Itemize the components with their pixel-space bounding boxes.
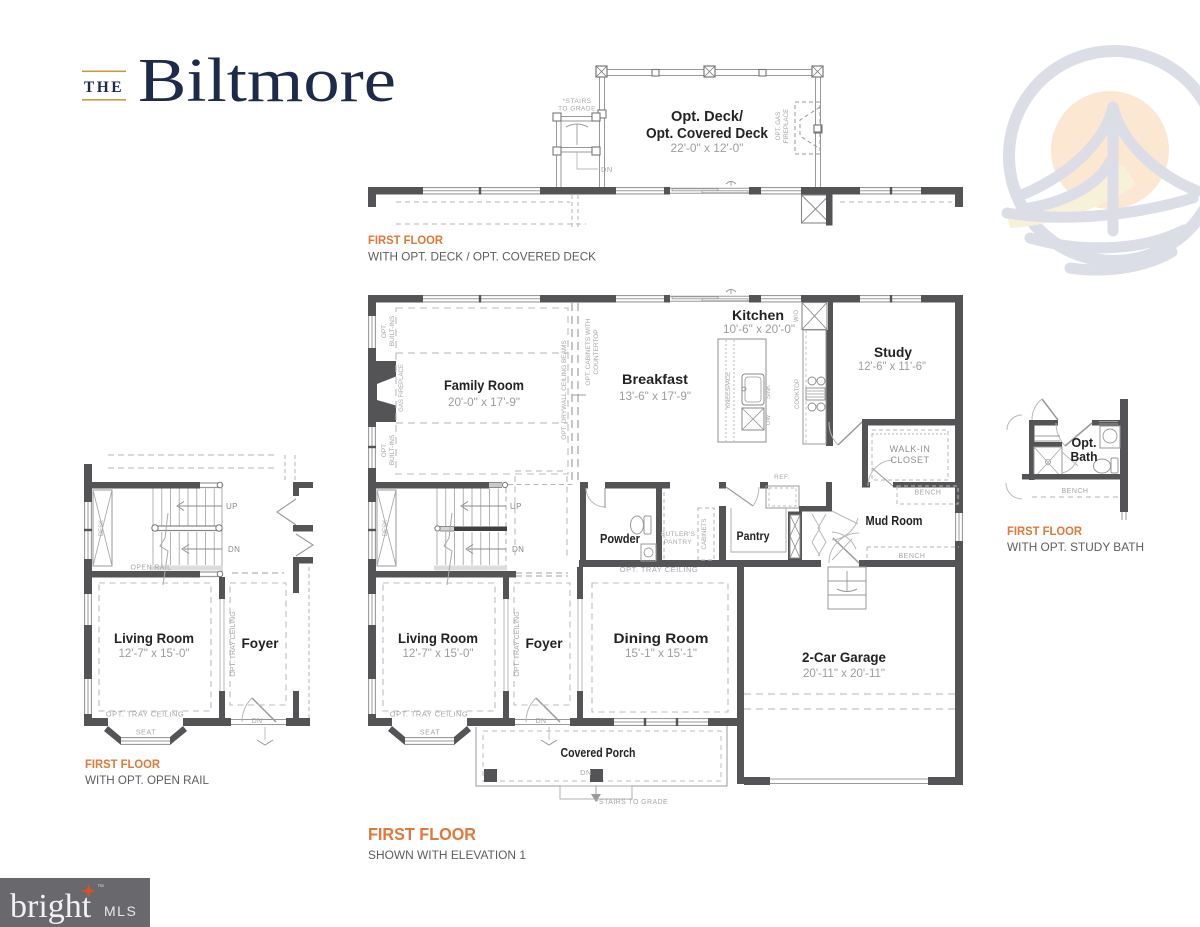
svg-text:OPT.: OPT.	[381, 324, 388, 339]
svg-text:DN: DN	[601, 165, 613, 174]
svg-text:TO GRADE: TO GRADE	[558, 106, 596, 113]
svg-text:DN: DN	[536, 718, 547, 725]
svg-text:12'-6" x 11'-6": 12'-6" x 11'-6"	[858, 359, 926, 373]
svg-text:10'-6" x 20'-0": 10'-6" x 20'-0"	[723, 322, 795, 336]
svg-text:BENCH: BENCH	[914, 490, 941, 497]
svg-text:Family Room: Family Room	[444, 377, 524, 393]
svg-text:20'-0" x 17'-9": 20'-0" x 17'-9"	[448, 395, 520, 409]
svg-text:DN: DN	[580, 768, 592, 777]
svg-text:OPEN RAIL: OPEN RAIL	[131, 565, 172, 572]
svg-text:FIRST FLOOR: FIRST FLOOR	[368, 824, 476, 844]
svg-text:DW: DW	[766, 415, 772, 425]
svg-text:Foyer: Foyer	[526, 635, 564, 651]
svg-text:DN: DN	[512, 545, 524, 554]
svg-text:20'-11" x 20'-11": 20'-11" x 20'-11"	[803, 666, 885, 680]
svg-text:FIRST FLOOR: FIRST FLOOR	[368, 233, 443, 247]
svg-text:W/O: W/O	[794, 310, 800, 322]
svg-text:BUILT-INS: BUILT-INS	[389, 315, 396, 346]
svg-text:BENCH: BENCH	[898, 553, 925, 560]
svg-text:DN: DN	[252, 718, 263, 725]
svg-text:Kitchen: Kitchen	[732, 307, 784, 323]
svg-text:15'-1" x 15'-1": 15'-1" x 15'-1"	[625, 646, 697, 660]
svg-text:UP: UP	[510, 502, 522, 511]
svg-text:COUNTERTOP: COUNTERTOP	[593, 329, 600, 374]
svg-text:22'-0" x 12'-0": 22'-0" x 12'-0"	[671, 141, 744, 155]
svg-text:12'-7" x 15'-0": 12'-7" x 15'-0"	[119, 646, 190, 660]
svg-text:Powder: Powder	[600, 532, 640, 546]
svg-text:Pantry: Pantry	[737, 531, 771, 543]
svg-text:OPT.: OPT.	[381, 443, 388, 458]
svg-text:Foyer: Foyer	[242, 635, 280, 651]
svg-text:PANTRY: PANTRY	[664, 539, 692, 546]
svg-text:BUILT-INS: BUILT-INS	[389, 434, 396, 465]
svg-text:OPT. TRAY CEILING: OPT. TRAY CEILING	[230, 611, 237, 676]
svg-text:12'-7" x 15'-0": 12'-7" x 15'-0"	[403, 646, 474, 660]
svg-text:OPT. DRYWALL CEILING BEAMS: OPT. DRYWALL CEILING BEAMS	[561, 340, 568, 440]
svg-text:Dining Room: Dining Room	[614, 630, 709, 646]
svg-text:WITH OPT. STUDY BATH: WITH OPT. STUDY BATH	[1007, 540, 1144, 554]
svg-text:FIRST FLOOR: FIRST FLOOR	[1007, 524, 1082, 538]
svg-text:™: ™	[97, 884, 104, 891]
svg-text:WALK-IN: WALK-IN	[890, 444, 931, 454]
svg-text:GAS FIREPLACE: GAS FIREPLACE	[399, 364, 405, 412]
svg-text:Biltmore: Biltmore	[138, 47, 396, 115]
svg-text:FIREPLACE: FIREPLACE	[783, 109, 790, 143]
svg-text:OPT. TRAY CEILING: OPT. TRAY CEILING	[106, 710, 185, 719]
svg-text:Covered Porch: Covered Porch	[561, 746, 636, 760]
svg-text:COOKTOP: COOKTOP	[795, 379, 801, 409]
svg-text:OPT. CABINETS WITH: OPT. CABINETS WITH	[585, 318, 592, 385]
svg-text:DN: DN	[228, 545, 240, 554]
svg-text:Opt. Deck/: Opt. Deck/	[671, 109, 743, 125]
svg-text:UP: UP	[226, 502, 238, 511]
svg-text:CLOSET: CLOSET	[890, 455, 929, 465]
svg-text:REF.: REF.	[774, 474, 790, 481]
svg-text:Living Room: Living Room	[398, 630, 478, 646]
svg-text:Opt.: Opt.	[1072, 436, 1097, 450]
svg-text:Mud Room: Mud Room	[866, 514, 923, 528]
svg-text:OPT. TRAY CEILING: OPT. TRAY CEILING	[620, 565, 699, 574]
svg-text:13'-6" x 17'-9": 13'-6" x 17'-9"	[619, 389, 691, 403]
svg-text:KNEESPACE: KNEESPACE	[726, 372, 732, 408]
svg-text:OPT. GAS: OPT. GAS	[775, 112, 782, 141]
svg-text:Bath: Bath	[1071, 450, 1098, 464]
svg-text:BUTLER'S: BUTLER'S	[661, 531, 696, 538]
svg-text:*STAIRS: *STAIRS	[562, 98, 591, 105]
svg-text:DESK: DESK	[383, 520, 389, 536]
svg-text:THE: THE	[84, 79, 124, 96]
svg-text:BENCH: BENCH	[1061, 488, 1088, 495]
svg-text:SINK: SINK	[766, 385, 772, 399]
svg-text:SHOWN WITH ELEVATION 1: SHOWN WITH ELEVATION 1	[368, 848, 526, 862]
svg-text:Breakfast: Breakfast	[622, 371, 688, 387]
svg-text:DESK: DESK	[99, 520, 105, 536]
svg-text:WITH OPT. DECK / OPT. COVERED: WITH OPT. DECK / OPT. COVERED DECK	[368, 250, 596, 264]
svg-text:OPT. TRAY CEILING: OPT. TRAY CEILING	[390, 710, 469, 719]
svg-text:WITH OPT. OPEN RAIL: WITH OPT. OPEN RAIL	[85, 773, 209, 787]
svg-text:2-Car Garage: 2-Car Garage	[802, 649, 886, 665]
svg-text:Opt. Covered Deck: Opt. Covered Deck	[646, 126, 769, 142]
svg-text:SEAT: SEAT	[420, 730, 440, 737]
svg-text:Living Room: Living Room	[114, 630, 194, 646]
svg-text:OPT. TRAY CEILING: OPT. TRAY CEILING	[514, 611, 521, 676]
svg-text:MLS: MLS	[104, 903, 137, 919]
svg-text:*STAIRS TO GRADE: *STAIRS TO GRADE	[596, 799, 668, 806]
svg-text:bright: bright	[10, 888, 92, 925]
svg-text:CABINETS: CABINETS	[701, 519, 708, 550]
svg-text:FIRST FLOOR: FIRST FLOOR	[85, 757, 160, 771]
svg-text:SEAT: SEAT	[136, 730, 156, 737]
svg-text:Study: Study	[874, 344, 912, 360]
